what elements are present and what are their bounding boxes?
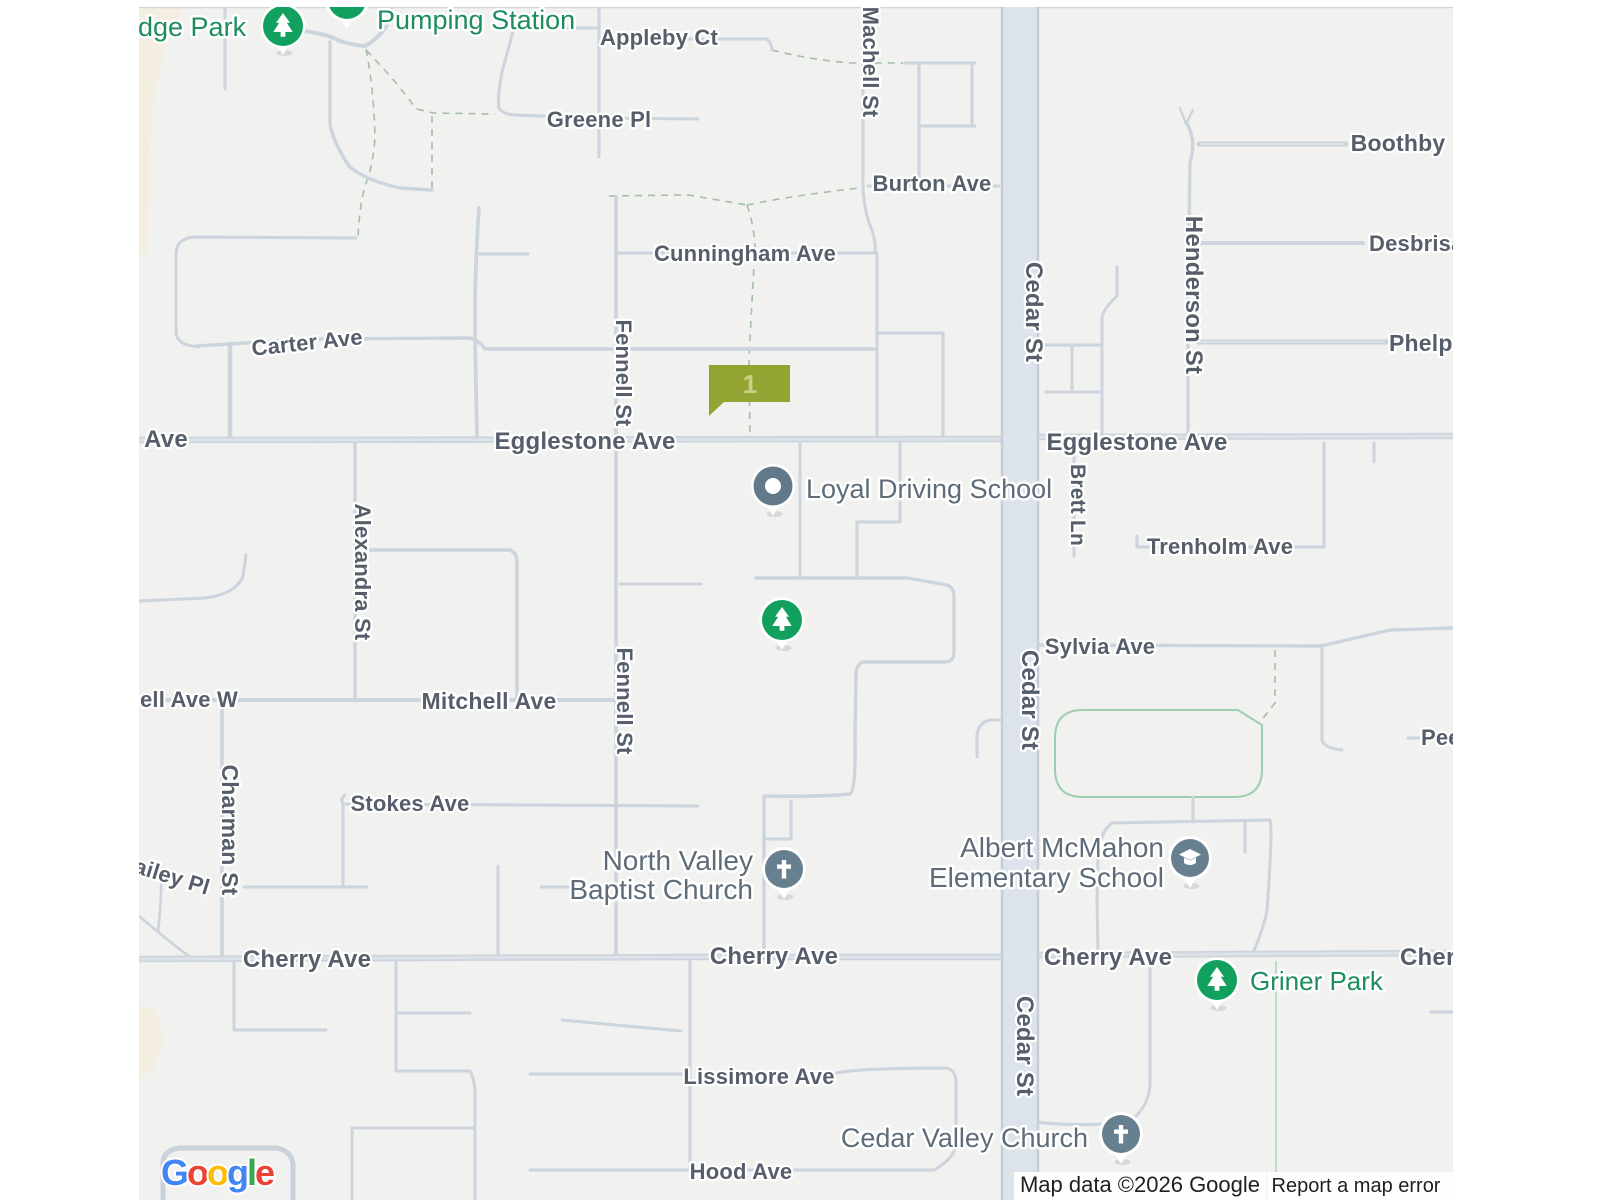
svg-text:Hood Ave: Hood Ave xyxy=(690,1159,793,1184)
svg-text:Egglestone Ave: Egglestone Ave xyxy=(1046,429,1227,456)
svg-text:Griner Park: Griner Park xyxy=(1250,966,1384,996)
svg-text:Loyal Driving School: Loyal Driving School xyxy=(806,474,1052,504)
svg-text:Greene Pl: Greene Pl xyxy=(547,107,652,132)
svg-text:ell Ave W: ell Ave W xyxy=(140,687,238,712)
svg-text:Trenholm Ave: Trenholm Ave xyxy=(1147,534,1293,559)
svg-text:Appleby Ct: Appleby Ct xyxy=(600,25,719,50)
svg-text:Elementary School: Elementary School xyxy=(929,862,1164,893)
svg-text:Cedar St: Cedar St xyxy=(1011,996,1038,1096)
svg-text:North Valley: North Valley xyxy=(603,845,753,876)
svg-text:Baptist Church: Baptist Church xyxy=(569,874,753,905)
svg-text:dge Park: dge Park xyxy=(138,12,247,42)
svg-text:Ave: Ave xyxy=(144,426,188,453)
svg-text:Cedar St: Cedar St xyxy=(1016,650,1043,750)
svg-text:Machell St: Machell St xyxy=(858,7,883,118)
svg-text:Pumping Station: Pumping Station xyxy=(377,5,575,35)
svg-text:Fennell St: Fennell St xyxy=(611,319,636,427)
svg-text:Cedar St: Cedar St xyxy=(1020,262,1047,362)
svg-text:Cedar Valley Church: Cedar Valley Church xyxy=(841,1123,1088,1153)
svg-text:Cherry Ave: Cherry Ave xyxy=(1044,944,1172,971)
svg-text:Egglestone Ave: Egglestone Ave xyxy=(494,428,675,455)
svg-text:Cunningham Ave: Cunningham Ave xyxy=(654,241,836,266)
svg-text:Brett Ln: Brett Ln xyxy=(1066,464,1089,546)
svg-text:Fennell St: Fennell St xyxy=(612,647,637,755)
svg-text:Alexandra St: Alexandra St xyxy=(350,504,375,641)
svg-text:Lissimore Ave: Lissimore Ave xyxy=(683,1064,834,1089)
svg-text:Mitchell Ave: Mitchell Ave xyxy=(422,688,557,714)
svg-text:Henderson St: Henderson St xyxy=(1180,216,1207,374)
svg-text:Report a map error: Report a map error xyxy=(1272,1175,1441,1197)
svg-text:Cherry Ave: Cherry Ave xyxy=(710,943,838,970)
svg-text:Sylvia Ave: Sylvia Ave xyxy=(1045,634,1155,659)
svg-text:Stokes Ave: Stokes Ave xyxy=(351,791,470,816)
svg-text:1: 1 xyxy=(743,369,757,399)
svg-text:Boothby: Boothby xyxy=(1351,130,1446,156)
svg-text:Albert McMahon: Albert McMahon xyxy=(960,832,1164,863)
svg-text:Map data ©2026 Google: Map data ©2026 Google xyxy=(1020,1172,1260,1197)
svg-text:Charman St: Charman St xyxy=(217,764,243,895)
svg-text:Cherry Ave: Cherry Ave xyxy=(243,946,371,973)
svg-text:Google: Google xyxy=(161,1152,274,1193)
svg-text:Burton Ave: Burton Ave xyxy=(873,171,992,196)
